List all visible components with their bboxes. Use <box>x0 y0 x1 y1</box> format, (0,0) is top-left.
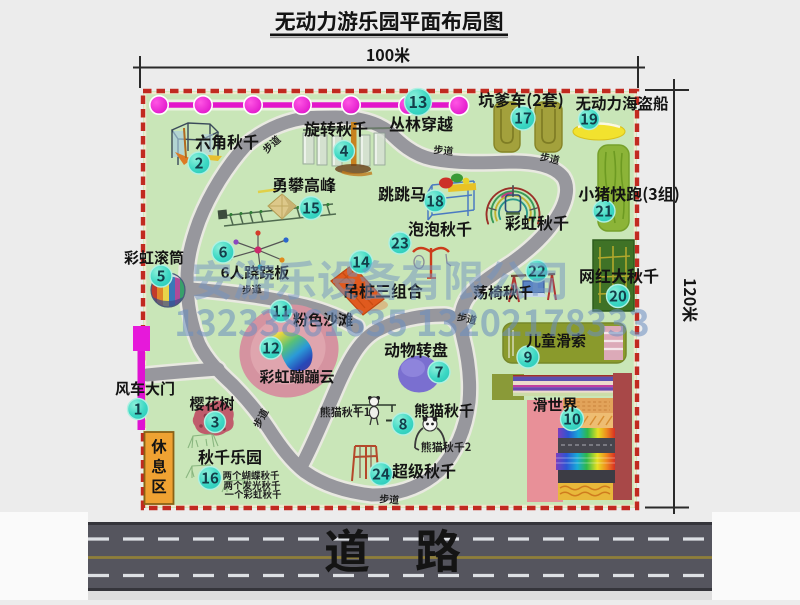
svg-text:步道: 步道 <box>379 490 400 506</box>
svg-text:熊猫秋千1: 熊猫秋千1 <box>320 404 371 420</box>
svg-text:小猪快跑(3组): 小猪快跑(3组) <box>578 181 680 205</box>
svg-text:休: 休 <box>151 435 167 457</box>
svg-text:无动力海盗船: 无动力海盗船 <box>575 92 669 114</box>
svg-text:5: 5 <box>157 266 166 287</box>
svg-text:超级秋千: 超级秋千 <box>392 458 456 482</box>
svg-text:六角秋千: 六角秋千 <box>195 129 259 153</box>
svg-text:网红大秋千: 网红大秋千 <box>579 263 659 287</box>
svg-text:100米: 100米 <box>366 42 410 66</box>
svg-text:2: 2 <box>195 153 204 174</box>
svg-text:13233861635 13202178333: 13233861635 13202178333 <box>174 295 649 347</box>
svg-text:坑爹车(2套): 坑爹车(2套) <box>478 87 564 111</box>
svg-text:彩虹秋千: 彩虹秋千 <box>505 210 569 234</box>
svg-text:4: 4 <box>340 141 349 162</box>
svg-text:无动力游乐园平面布局图: 无动力游乐园平面布局图 <box>275 6 504 36</box>
svg-text:120米: 120米 <box>679 278 703 322</box>
svg-text:区: 区 <box>151 475 167 497</box>
svg-text:丛林穿越: 丛林穿越 <box>389 111 453 135</box>
svg-text:步道: 步道 <box>433 141 454 158</box>
svg-text:息: 息 <box>151 455 167 477</box>
svg-text:跳跳马: 跳跳马 <box>378 181 426 205</box>
svg-text:8: 8 <box>399 414 408 435</box>
svg-text:秋千乐园: 秋千乐园 <box>198 444 262 468</box>
svg-text:彩虹滚筒: 彩虹滚筒 <box>124 247 184 268</box>
svg-text:道: 道 <box>324 516 370 582</box>
svg-text:一个彩虹秋千: 一个彩虹秋千 <box>224 487 282 501</box>
svg-text:13: 13 <box>409 89 428 113</box>
svg-text:7: 7 <box>435 362 444 383</box>
svg-text:熊猫秋千2: 熊猫秋千2 <box>421 439 472 455</box>
svg-text:1: 1 <box>134 399 143 420</box>
svg-text:泡泡秋千: 泡泡秋千 <box>408 216 472 240</box>
svg-text:15: 15 <box>302 198 320 219</box>
svg-text:24: 24 <box>372 464 390 485</box>
svg-text:旋转秋千: 旋转秋千 <box>304 116 368 140</box>
svg-text:路: 路 <box>415 516 461 582</box>
svg-text:18: 18 <box>426 191 444 212</box>
svg-text:16: 16 <box>201 468 219 489</box>
svg-text:勇攀高峰: 勇攀高峰 <box>272 172 336 196</box>
svg-text:风车大门: 风车大门 <box>115 378 175 399</box>
svg-text:彩虹蹦蹦云: 彩虹蹦蹦云 <box>259 366 334 387</box>
svg-text:3: 3 <box>211 412 220 433</box>
svg-text:滑世界: 滑世界 <box>532 394 577 415</box>
